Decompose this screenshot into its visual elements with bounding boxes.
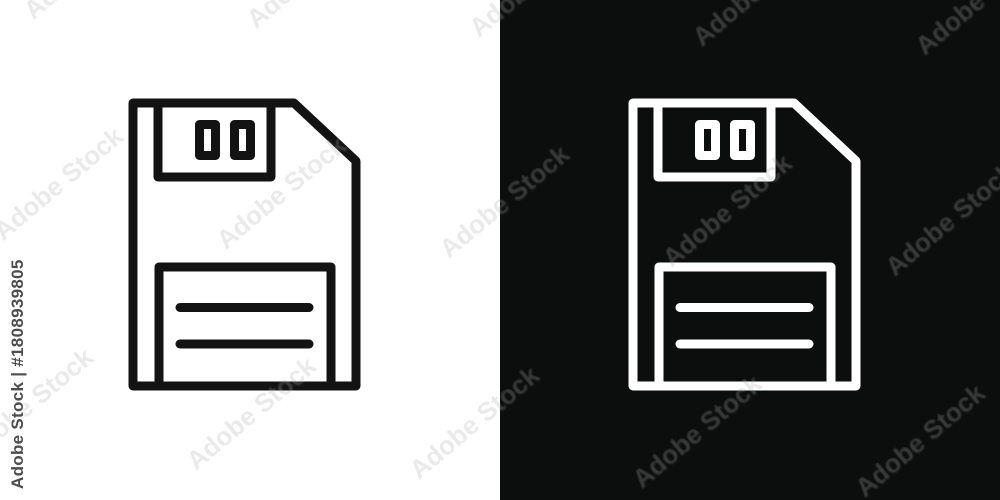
disk-label <box>159 267 331 386</box>
panel-light-variant <box>0 0 500 500</box>
floppy-disk-icon-dark <box>628 98 862 392</box>
stock-id-label: Adobe Stock | #1808939805 <box>8 259 28 489</box>
disk-label <box>659 267 831 386</box>
shutter-slot-left <box>200 125 216 156</box>
floppy-disk-icon-light <box>128 98 362 392</box>
shutter-slot-left <box>700 125 716 156</box>
stock-image-canvas: Adobe StockAdobe StockAdobe StockAdobe S… <box>0 0 1000 500</box>
shutter-slot-right <box>735 125 751 156</box>
shutter-slot-right <box>235 125 251 156</box>
panel-dark-variant <box>500 0 1000 500</box>
